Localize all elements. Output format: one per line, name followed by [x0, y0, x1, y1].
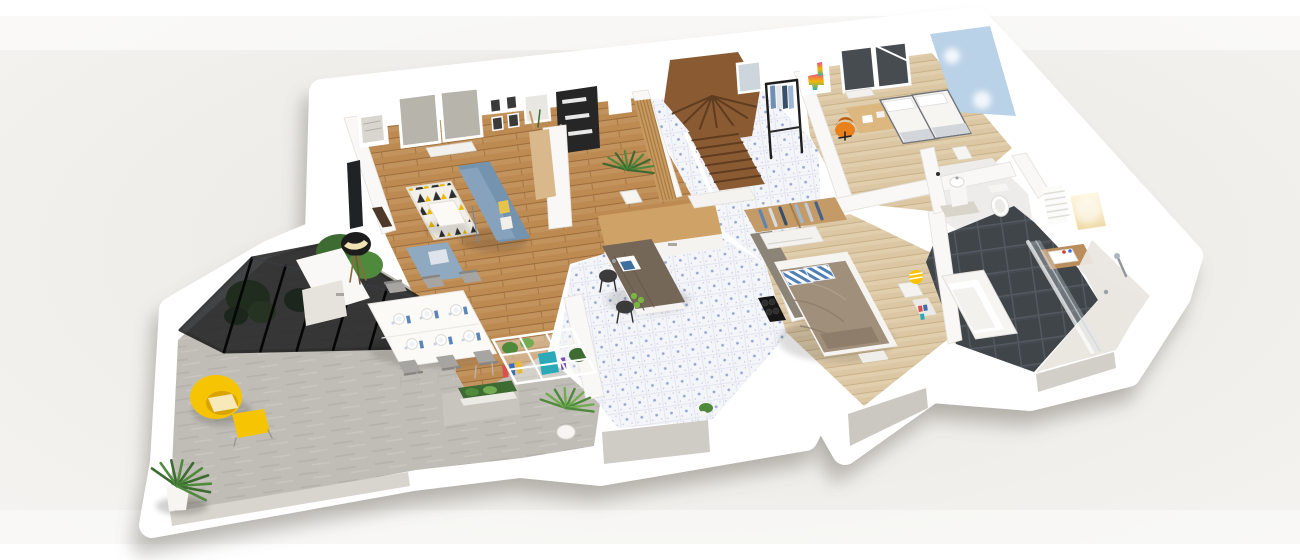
hanging-clothes	[782, 85, 788, 109]
hedge-tuft	[483, 386, 497, 394]
wall-light-glow	[973, 91, 991, 109]
photo-frame	[492, 117, 503, 131]
photo-frame	[506, 96, 517, 110]
vent-logo	[668, 243, 677, 246]
window-pane	[874, 42, 910, 88]
faucet	[956, 177, 959, 180]
burner	[766, 309, 772, 315]
palm-frond	[565, 388, 566, 408]
burner	[773, 308, 779, 314]
hanging-clothes	[776, 85, 782, 109]
hot-tap	[1062, 250, 1066, 254]
floorplan-3d-render	[0, 0, 1300, 560]
hanging-clothes	[788, 85, 794, 109]
map-print	[361, 115, 384, 143]
photo-frame	[508, 114, 519, 128]
plate-inner	[453, 307, 458, 312]
paper	[862, 115, 873, 124]
paper	[876, 111, 885, 118]
window-pane	[440, 88, 482, 141]
scene-root	[0, 0, 1300, 560]
cold-tap	[1068, 249, 1072, 253]
glass	[462, 339, 465, 342]
hand-shower	[1104, 290, 1108, 294]
paper-holder	[936, 172, 940, 176]
shower-head	[1114, 253, 1120, 259]
plate-inner	[438, 337, 443, 342]
glass	[449, 313, 452, 316]
apple	[634, 302, 640, 308]
palm-pot	[557, 425, 575, 439]
llama-neck	[817, 62, 823, 76]
book	[918, 305, 923, 311]
book	[920, 313, 925, 319]
plate-inner	[409, 341, 414, 346]
plate-inner	[424, 311, 429, 316]
faucet	[612, 259, 616, 263]
frame-by-door	[607, 85, 632, 115]
glass	[392, 322, 395, 325]
hedge-tuft	[465, 388, 479, 396]
glass	[434, 343, 437, 346]
shelf-plant	[502, 342, 518, 354]
glass	[420, 317, 423, 320]
hanging-clothes	[770, 85, 776, 109]
burner	[762, 300, 768, 306]
plate-inner	[396, 316, 401, 321]
wall-light-glow	[944, 48, 960, 64]
book	[923, 304, 928, 310]
llama-artwork	[799, 55, 831, 96]
photo-frame	[490, 99, 501, 113]
apple	[631, 293, 637, 299]
yellow-pillow	[498, 200, 510, 214]
window-pane	[840, 46, 876, 92]
floorplan-stage	[0, 0, 1300, 560]
niche-glow	[1075, 197, 1101, 223]
plate-inner	[466, 333, 471, 338]
glass	[405, 347, 408, 350]
stair-window	[737, 61, 762, 93]
apple	[638, 297, 644, 303]
burner	[769, 299, 775, 305]
small-window	[524, 93, 550, 123]
kitchen-plant-pot	[699, 411, 707, 417]
window-pane	[398, 93, 440, 147]
vent-logo	[336, 293, 344, 296]
white-pillow	[500, 216, 513, 230]
